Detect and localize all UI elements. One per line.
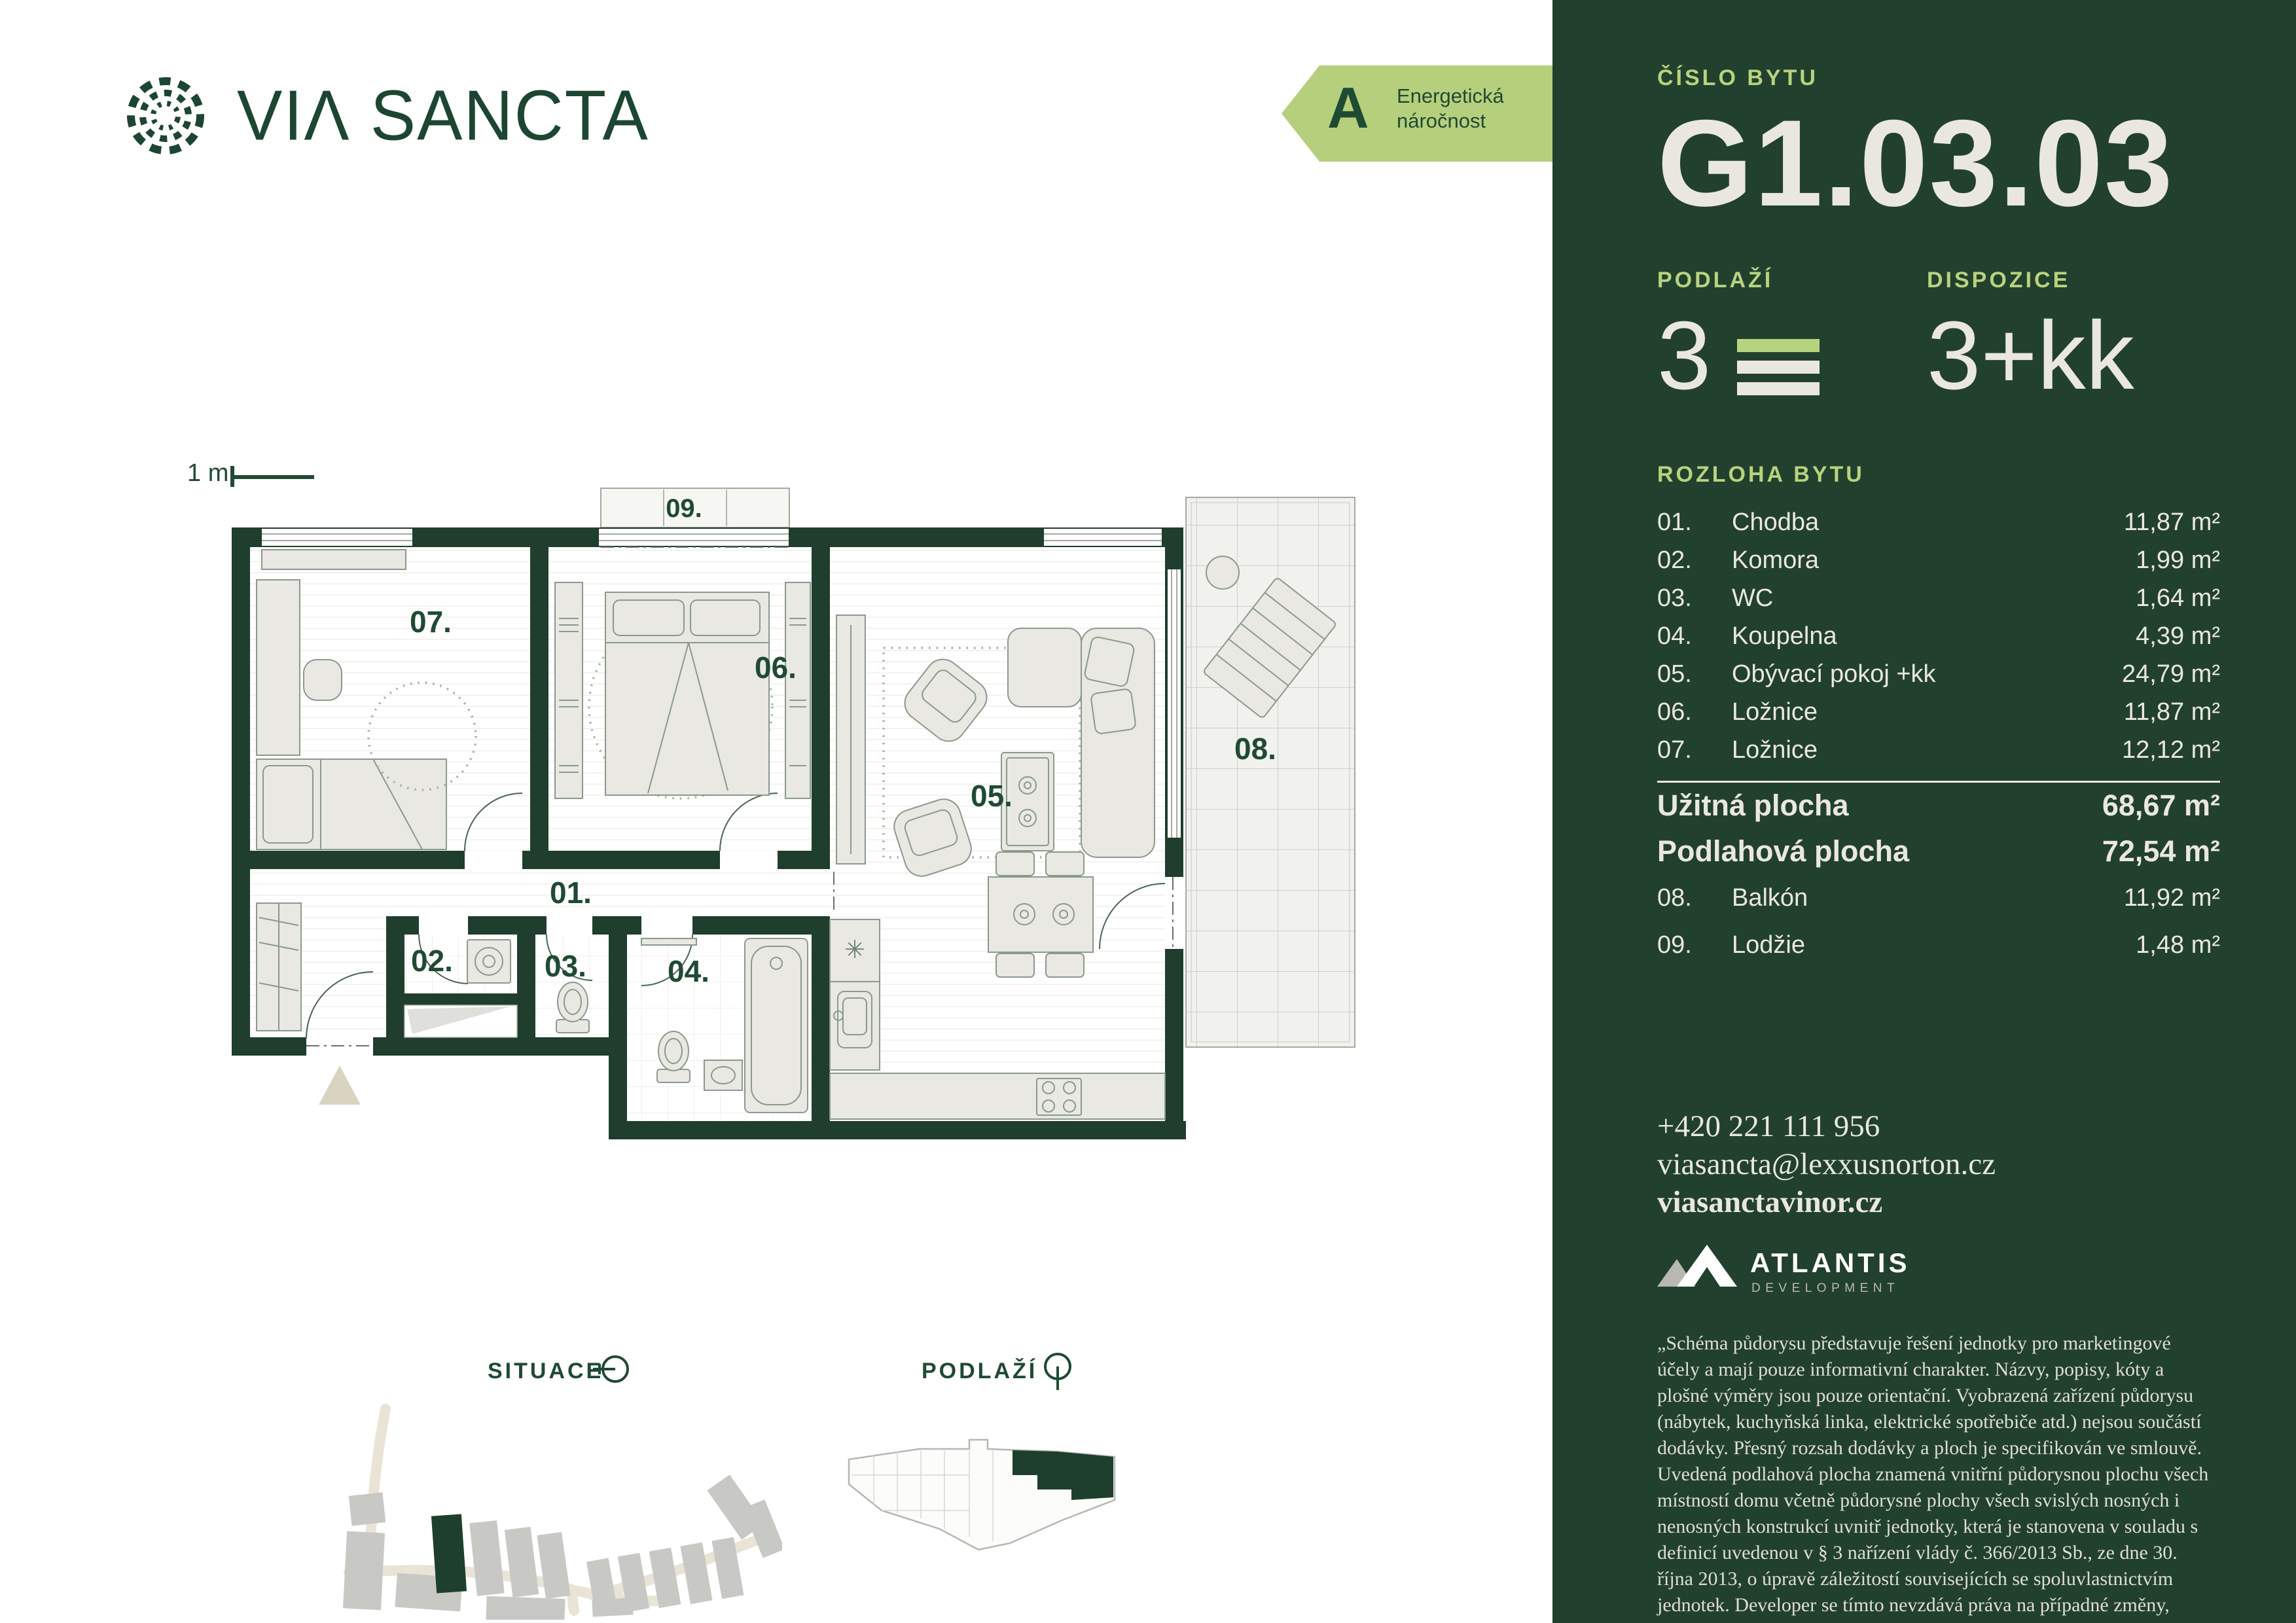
washing-machine-icon <box>467 940 511 983</box>
sofa-icon <box>1008 628 1081 707</box>
north-arrow-icon <box>590 1349 632 1389</box>
table-row: 01. Chodba 11,87 m² <box>1657 503 2220 541</box>
row-area: 24,79 m² <box>2122 660 2220 688</box>
unit-number: G1.03.03 <box>1657 101 2220 224</box>
brand-logo: VIΛ SANCTA <box>123 73 649 158</box>
row-name: Lodžie <box>1732 931 2136 959</box>
room-label-02: 02. <box>411 944 453 978</box>
row-name: Ložnice <box>1732 698 2124 726</box>
floor-key-plan <box>841 1433 1122 1564</box>
developer-tagline: DEVELOPMENT <box>1751 1281 1899 1295</box>
row-num: 01. <box>1657 508 1732 537</box>
table-row: 02. Komora 1,99 m² <box>1657 541 2220 579</box>
contact-block: +420 221 111 956 viasancta@lexxusnorton.… <box>1657 1107 2220 1221</box>
entry-arrow-icon <box>319 1065 361 1105</box>
summary-area: 68,67 m² <box>2102 789 2220 823</box>
brand-word-via: VI <box>237 75 304 156</box>
row-area: 12,12 m² <box>2122 736 2220 764</box>
mountain-icon <box>1677 1245 1737 1287</box>
summary-table: Užitná plocha 68,67 m² Podlahová plocha … <box>1657 783 2220 874</box>
developer-name: ATLANTIS <box>1750 1247 1910 1278</box>
table-row: 04. Koupelna 4,39 m² <box>1657 617 2220 655</box>
scale-label: 1 m <box>187 459 228 488</box>
area-section-label: ROZLOHA BYTU <box>1657 462 2220 488</box>
row-num: 06. <box>1657 698 1732 726</box>
row-area: 1,99 m² <box>2136 546 2220 575</box>
floor-value: 3 <box>1657 308 1711 404</box>
row-area: 11,92 m² <box>2124 884 2220 912</box>
row-area: 4,39 m² <box>2136 622 2220 651</box>
energy-label-line2: náročnost <box>1397 109 1504 134</box>
table-row: 08. Balkón 11,92 m² <box>1657 874 2220 921</box>
floor-label: PODLAŽÍ <box>1657 268 1927 293</box>
energy-label: Energetická náročnost <box>1397 84 1504 134</box>
chair-icon <box>304 660 342 700</box>
table-row: 09. Lodžie 1,48 m² <box>1657 921 2220 969</box>
table-row: 03. WC 1,64 m² <box>1657 579 2220 617</box>
rotation-arrow-icon <box>1038 1349 1077 1393</box>
row-num: 05. <box>1657 660 1732 688</box>
developer-logo: ATLANTIS DEVELOPMENT <box>1657 1242 2220 1300</box>
exterior-table: 08. Balkón 11,92 m² 09. Lodžie 1,48 m² <box>1657 874 2220 969</box>
energy-grade: A <box>1327 75 1369 141</box>
site-map <box>331 1404 782 1620</box>
room-label-03: 03. <box>545 949 586 983</box>
row-area: 1,48 m² <box>2136 931 2220 959</box>
floorplan: ✳ 01. 02. 03. 04. 05. 06. 07. 08. 09. <box>223 484 1374 1158</box>
row-num: 08. <box>1657 884 1732 912</box>
contact-phone: +420 221 111 956 <box>1657 1107 2220 1145</box>
light-symbol-icon: ✳ <box>844 936 865 964</box>
contact-email: viasancta@lexxusnorton.cz <box>1657 1145 2220 1183</box>
table-row: 07. Ložnice 12,12 m² <box>1657 731 2220 769</box>
room-label-01: 01. <box>550 876 592 910</box>
room-label-08: 08. <box>1234 732 1276 766</box>
row-name: WC <box>1732 584 2136 613</box>
scale-line <box>230 475 314 479</box>
side-table-icon <box>1206 556 1239 589</box>
row-num: 02. <box>1657 546 1732 575</box>
row-name: Ložnice <box>1732 736 2122 764</box>
floor-bars-icon <box>1737 339 1820 395</box>
dining-table-icon <box>988 877 1093 952</box>
row-num: 03. <box>1657 584 1732 613</box>
brand-letter-lambda: Λ <box>304 75 350 156</box>
storage-niche <box>404 1005 517 1037</box>
row-num: 07. <box>1657 736 1732 764</box>
room-02-furniture <box>467 940 511 983</box>
floor-block: PODLAŽÍ 3 <box>1657 268 1927 404</box>
table-row: 05. Obývací pokoj +kk 24,79 m² <box>1657 655 2220 693</box>
hall-wardrobe-icon <box>257 903 301 1031</box>
room-label-05: 05. <box>971 779 1013 813</box>
row-name: Obývací pokoj +kk <box>1732 660 2122 688</box>
balcony-08 <box>1186 497 1355 1047</box>
disposition-value: 3+kk <box>1927 308 2134 404</box>
room-label-06: 06. <box>755 651 797 685</box>
sink-icon <box>704 1060 742 1090</box>
legal-disclaimer: „Schéma půdorysu představuje řešení jedn… <box>1657 1330 2217 1623</box>
brand-name: VIΛ SANCTA <box>237 75 649 156</box>
brand-word-sancta: SANCTA <box>370 75 649 156</box>
row-area: 11,87 m² <box>2124 508 2220 537</box>
energy-label-line1: Energetická <box>1397 84 1504 109</box>
disposition-label: DISPOZICE <box>1927 268 2134 293</box>
info-panel: ČÍSLO BYTU G1.03.03 PODLAŽÍ 3 DISPOZICE … <box>1552 0 2296 1623</box>
row-name: Balkón <box>1732 884 2124 912</box>
row-area: 1,64 m² <box>2136 584 2220 613</box>
row-name: Koupelna <box>1732 622 2136 651</box>
bathtub-icon <box>745 938 808 1113</box>
row-name: Komora <box>1732 546 2136 575</box>
row-num: 09. <box>1657 931 1732 959</box>
highlighted-building <box>431 1514 467 1594</box>
energy-badge: A Energetická náročnost <box>1282 65 1553 162</box>
summary-area: 72,54 m² <box>2102 834 2220 868</box>
site-buildings <box>343 1474 782 1620</box>
row-name: Chodba <box>1732 508 2124 537</box>
disposition-block: DISPOZICE 3+kk <box>1927 268 2134 404</box>
summary-label: Užitná plocha <box>1657 789 2102 823</box>
room-label-04: 04. <box>668 954 709 988</box>
page: VIΛ SANCTA A Energetická náročnost 1 m <box>0 0 2296 1623</box>
contact-website: viasanctavinor.cz <box>1657 1183 2220 1221</box>
situace-title: SITUACE <box>488 1359 603 1384</box>
row-num: 04. <box>1657 622 1732 651</box>
podlazi-title: PODLAŽÍ <box>922 1359 1037 1384</box>
unit-number-label: ČÍSLO BYTU <box>1657 65 2220 91</box>
brand-logo-icon <box>123 73 208 158</box>
table-row: 06. Ložnice 11,87 m² <box>1657 693 2220 731</box>
room-area-table: 01. Chodba 11,87 m² 02. Komora 1,99 m² 0… <box>1657 503 2220 769</box>
room-03-furniture <box>556 982 589 1033</box>
room-label-07: 07. <box>410 605 452 639</box>
row-area: 11,87 m² <box>2124 698 2220 726</box>
summary-label: Podlahová plocha <box>1657 834 2102 868</box>
room-label-09: 09. <box>666 494 702 523</box>
summary-row: Podlahová plocha 72,54 m² <box>1657 829 2220 874</box>
summary-row: Užitná plocha 68,67 m² <box>1657 783 2220 829</box>
